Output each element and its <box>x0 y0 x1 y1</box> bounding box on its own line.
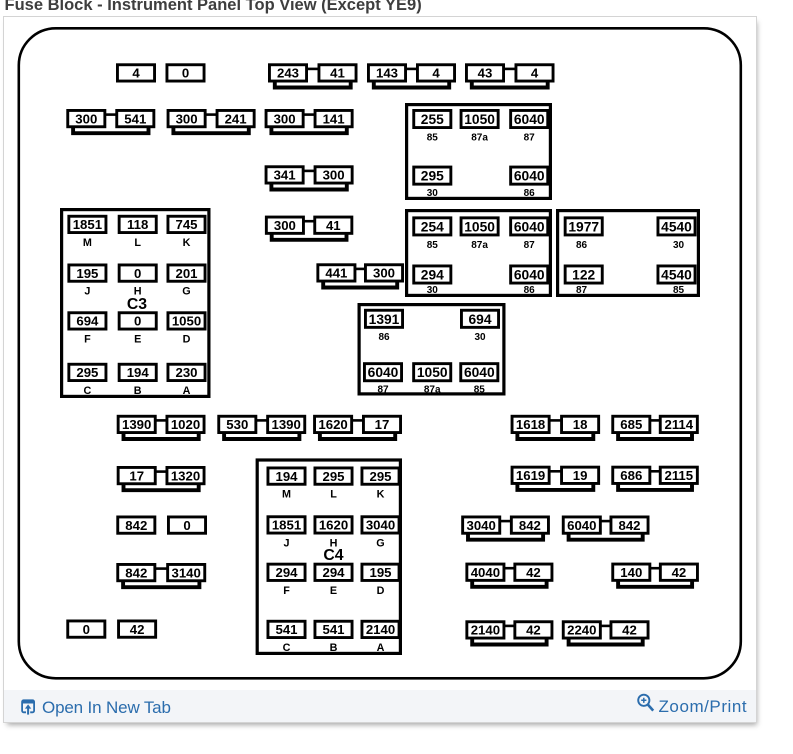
svg-text:842: 842 <box>125 518 147 533</box>
svg-text:294: 294 <box>421 268 444 283</box>
svg-text:4: 4 <box>432 66 440 81</box>
svg-text:86: 86 <box>576 240 588 251</box>
svg-text:118: 118 <box>127 217 148 232</box>
svg-text:6040: 6040 <box>514 169 545 184</box>
svg-text:686: 686 <box>620 468 642 483</box>
svg-text:195: 195 <box>369 565 391 580</box>
svg-text:300: 300 <box>75 111 97 126</box>
svg-text:1851: 1851 <box>73 217 102 232</box>
svg-text:G: G <box>182 286 190 298</box>
svg-text:87a: 87a <box>471 240 488 251</box>
svg-text:0: 0 <box>134 314 141 329</box>
svg-text:3040: 3040 <box>467 518 496 533</box>
svg-text:1618: 1618 <box>516 417 545 432</box>
svg-text:87: 87 <box>377 385 389 396</box>
svg-text:C: C <box>83 385 91 397</box>
svg-text:694: 694 <box>468 312 491 327</box>
svg-text:243: 243 <box>277 66 299 81</box>
svg-text:42: 42 <box>526 565 541 580</box>
svg-text:41: 41 <box>326 218 341 233</box>
svg-text:1977: 1977 <box>568 219 599 234</box>
svg-text:255: 255 <box>421 112 444 127</box>
svg-text:0: 0 <box>183 518 190 533</box>
svg-text:842: 842 <box>618 518 640 533</box>
svg-text:18: 18 <box>573 417 588 432</box>
svg-text:3140: 3140 <box>172 565 201 580</box>
svg-text:300: 300 <box>274 218 296 233</box>
svg-text:B: B <box>134 385 142 397</box>
svg-text:2140: 2140 <box>366 622 395 637</box>
svg-text:1390: 1390 <box>122 417 151 432</box>
svg-text:300: 300 <box>176 111 198 126</box>
svg-text:43: 43 <box>478 66 493 81</box>
svg-text:2115: 2115 <box>664 468 693 483</box>
svg-text:141: 141 <box>323 111 345 126</box>
svg-text:0: 0 <box>83 622 90 637</box>
svg-text:C4: C4 <box>323 547 343 564</box>
svg-text:3040: 3040 <box>366 518 395 533</box>
svg-text:6040: 6040 <box>368 365 399 380</box>
svg-text:441: 441 <box>325 266 347 281</box>
svg-text:85: 85 <box>673 285 685 296</box>
svg-text:194: 194 <box>275 469 298 484</box>
svg-text:D: D <box>377 585 385 597</box>
svg-text:300: 300 <box>373 266 395 281</box>
svg-text:B: B <box>330 642 338 654</box>
svg-text:842: 842 <box>519 518 541 533</box>
svg-text:341: 341 <box>274 168 296 183</box>
svg-text:L: L <box>330 489 337 501</box>
svg-text:86: 86 <box>378 332 390 343</box>
svg-text:295: 295 <box>322 469 344 484</box>
svg-text:85: 85 <box>427 133 439 144</box>
svg-text:1320: 1320 <box>171 468 200 483</box>
svg-text:C: C <box>283 642 291 654</box>
svg-text:300: 300 <box>274 111 296 126</box>
svg-text:201: 201 <box>175 266 197 281</box>
svg-text:F: F <box>283 585 290 597</box>
svg-text:195: 195 <box>76 266 98 281</box>
svg-text:541: 541 <box>322 622 344 637</box>
svg-text:17: 17 <box>375 417 390 432</box>
svg-text:294: 294 <box>322 565 345 580</box>
svg-text:A: A <box>183 385 191 397</box>
svg-text:143: 143 <box>376 66 398 81</box>
svg-text:0: 0 <box>134 266 141 281</box>
svg-text:140: 140 <box>620 565 642 580</box>
svg-text:194: 194 <box>127 365 150 380</box>
svg-text:K: K <box>377 489 385 501</box>
svg-text:241: 241 <box>225 111 247 126</box>
svg-text:254: 254 <box>421 219 444 234</box>
svg-text:4540: 4540 <box>661 268 692 283</box>
svg-text:6040: 6040 <box>514 219 545 234</box>
svg-text:6040: 6040 <box>464 365 495 380</box>
svg-text:4040: 4040 <box>471 565 500 580</box>
svg-text:842: 842 <box>125 565 147 580</box>
svg-text:E: E <box>134 334 141 346</box>
svg-text:87a: 87a <box>424 385 441 396</box>
svg-text:42: 42 <box>130 622 145 637</box>
svg-text:87: 87 <box>576 285 588 296</box>
svg-text:J: J <box>84 286 90 298</box>
svg-text:2114: 2114 <box>664 417 693 432</box>
svg-text:30: 30 <box>427 188 439 199</box>
svg-text:87: 87 <box>524 240 536 251</box>
svg-text:85: 85 <box>427 240 439 251</box>
svg-text:85: 85 <box>474 385 486 396</box>
svg-text:0: 0 <box>182 66 189 81</box>
svg-text:30: 30 <box>673 240 685 251</box>
svg-text:6040: 6040 <box>514 268 545 283</box>
svg-text:41: 41 <box>330 66 345 81</box>
svg-text:1390: 1390 <box>272 417 301 432</box>
svg-text:122: 122 <box>572 268 595 283</box>
svg-text:1620: 1620 <box>319 518 348 533</box>
svg-text:2140: 2140 <box>471 623 500 638</box>
svg-text:1619: 1619 <box>516 468 545 483</box>
svg-text:1391: 1391 <box>369 312 400 327</box>
svg-text:L: L <box>134 237 141 249</box>
svg-text:295: 295 <box>369 469 391 484</box>
svg-text:E: E <box>330 585 337 597</box>
svg-text:1620: 1620 <box>318 417 347 432</box>
svg-text:F: F <box>84 334 91 346</box>
svg-text:685: 685 <box>620 417 642 432</box>
svg-text:295: 295 <box>421 169 444 184</box>
svg-text:230: 230 <box>175 365 197 380</box>
svg-text:541: 541 <box>275 622 297 637</box>
svg-text:M: M <box>83 237 92 249</box>
svg-text:1050: 1050 <box>172 314 201 329</box>
svg-text:86: 86 <box>524 285 536 296</box>
svg-text:4: 4 <box>132 66 140 81</box>
svg-text:87a: 87a <box>471 133 488 144</box>
svg-text:300: 300 <box>323 168 345 183</box>
svg-text:694: 694 <box>76 314 99 329</box>
svg-text:4540: 4540 <box>661 219 692 234</box>
svg-text:30: 30 <box>474 332 486 343</box>
svg-text:G: G <box>376 538 384 550</box>
svg-text:745: 745 <box>175 217 197 232</box>
svg-text:J: J <box>283 538 289 550</box>
svg-text:87: 87 <box>524 133 536 144</box>
svg-text:1050: 1050 <box>464 112 495 127</box>
svg-text:6040: 6040 <box>514 112 545 127</box>
svg-text:541: 541 <box>124 111 146 126</box>
svg-text:1851: 1851 <box>272 518 301 533</box>
svg-text:1050: 1050 <box>464 219 495 234</box>
svg-text:A: A <box>377 642 385 654</box>
svg-text:294: 294 <box>275 565 298 580</box>
svg-text:K: K <box>183 237 191 249</box>
svg-text:42: 42 <box>622 623 637 638</box>
svg-text:6040: 6040 <box>567 518 596 533</box>
svg-text:42: 42 <box>526 623 541 638</box>
svg-text:1020: 1020 <box>171 417 200 432</box>
svg-text:86: 86 <box>524 188 536 199</box>
svg-text:2240: 2240 <box>567 623 596 638</box>
svg-text:4: 4 <box>531 66 539 81</box>
svg-text:M: M <box>282 489 291 501</box>
svg-text:D: D <box>183 334 191 346</box>
svg-text:42: 42 <box>672 565 687 580</box>
svg-text:295: 295 <box>76 365 98 380</box>
svg-text:1050: 1050 <box>417 365 448 380</box>
svg-text:530: 530 <box>226 417 248 432</box>
svg-text:19: 19 <box>573 468 588 483</box>
svg-text:30: 30 <box>427 285 439 296</box>
svg-text:17: 17 <box>129 468 144 483</box>
svg-text:C3: C3 <box>127 296 147 313</box>
